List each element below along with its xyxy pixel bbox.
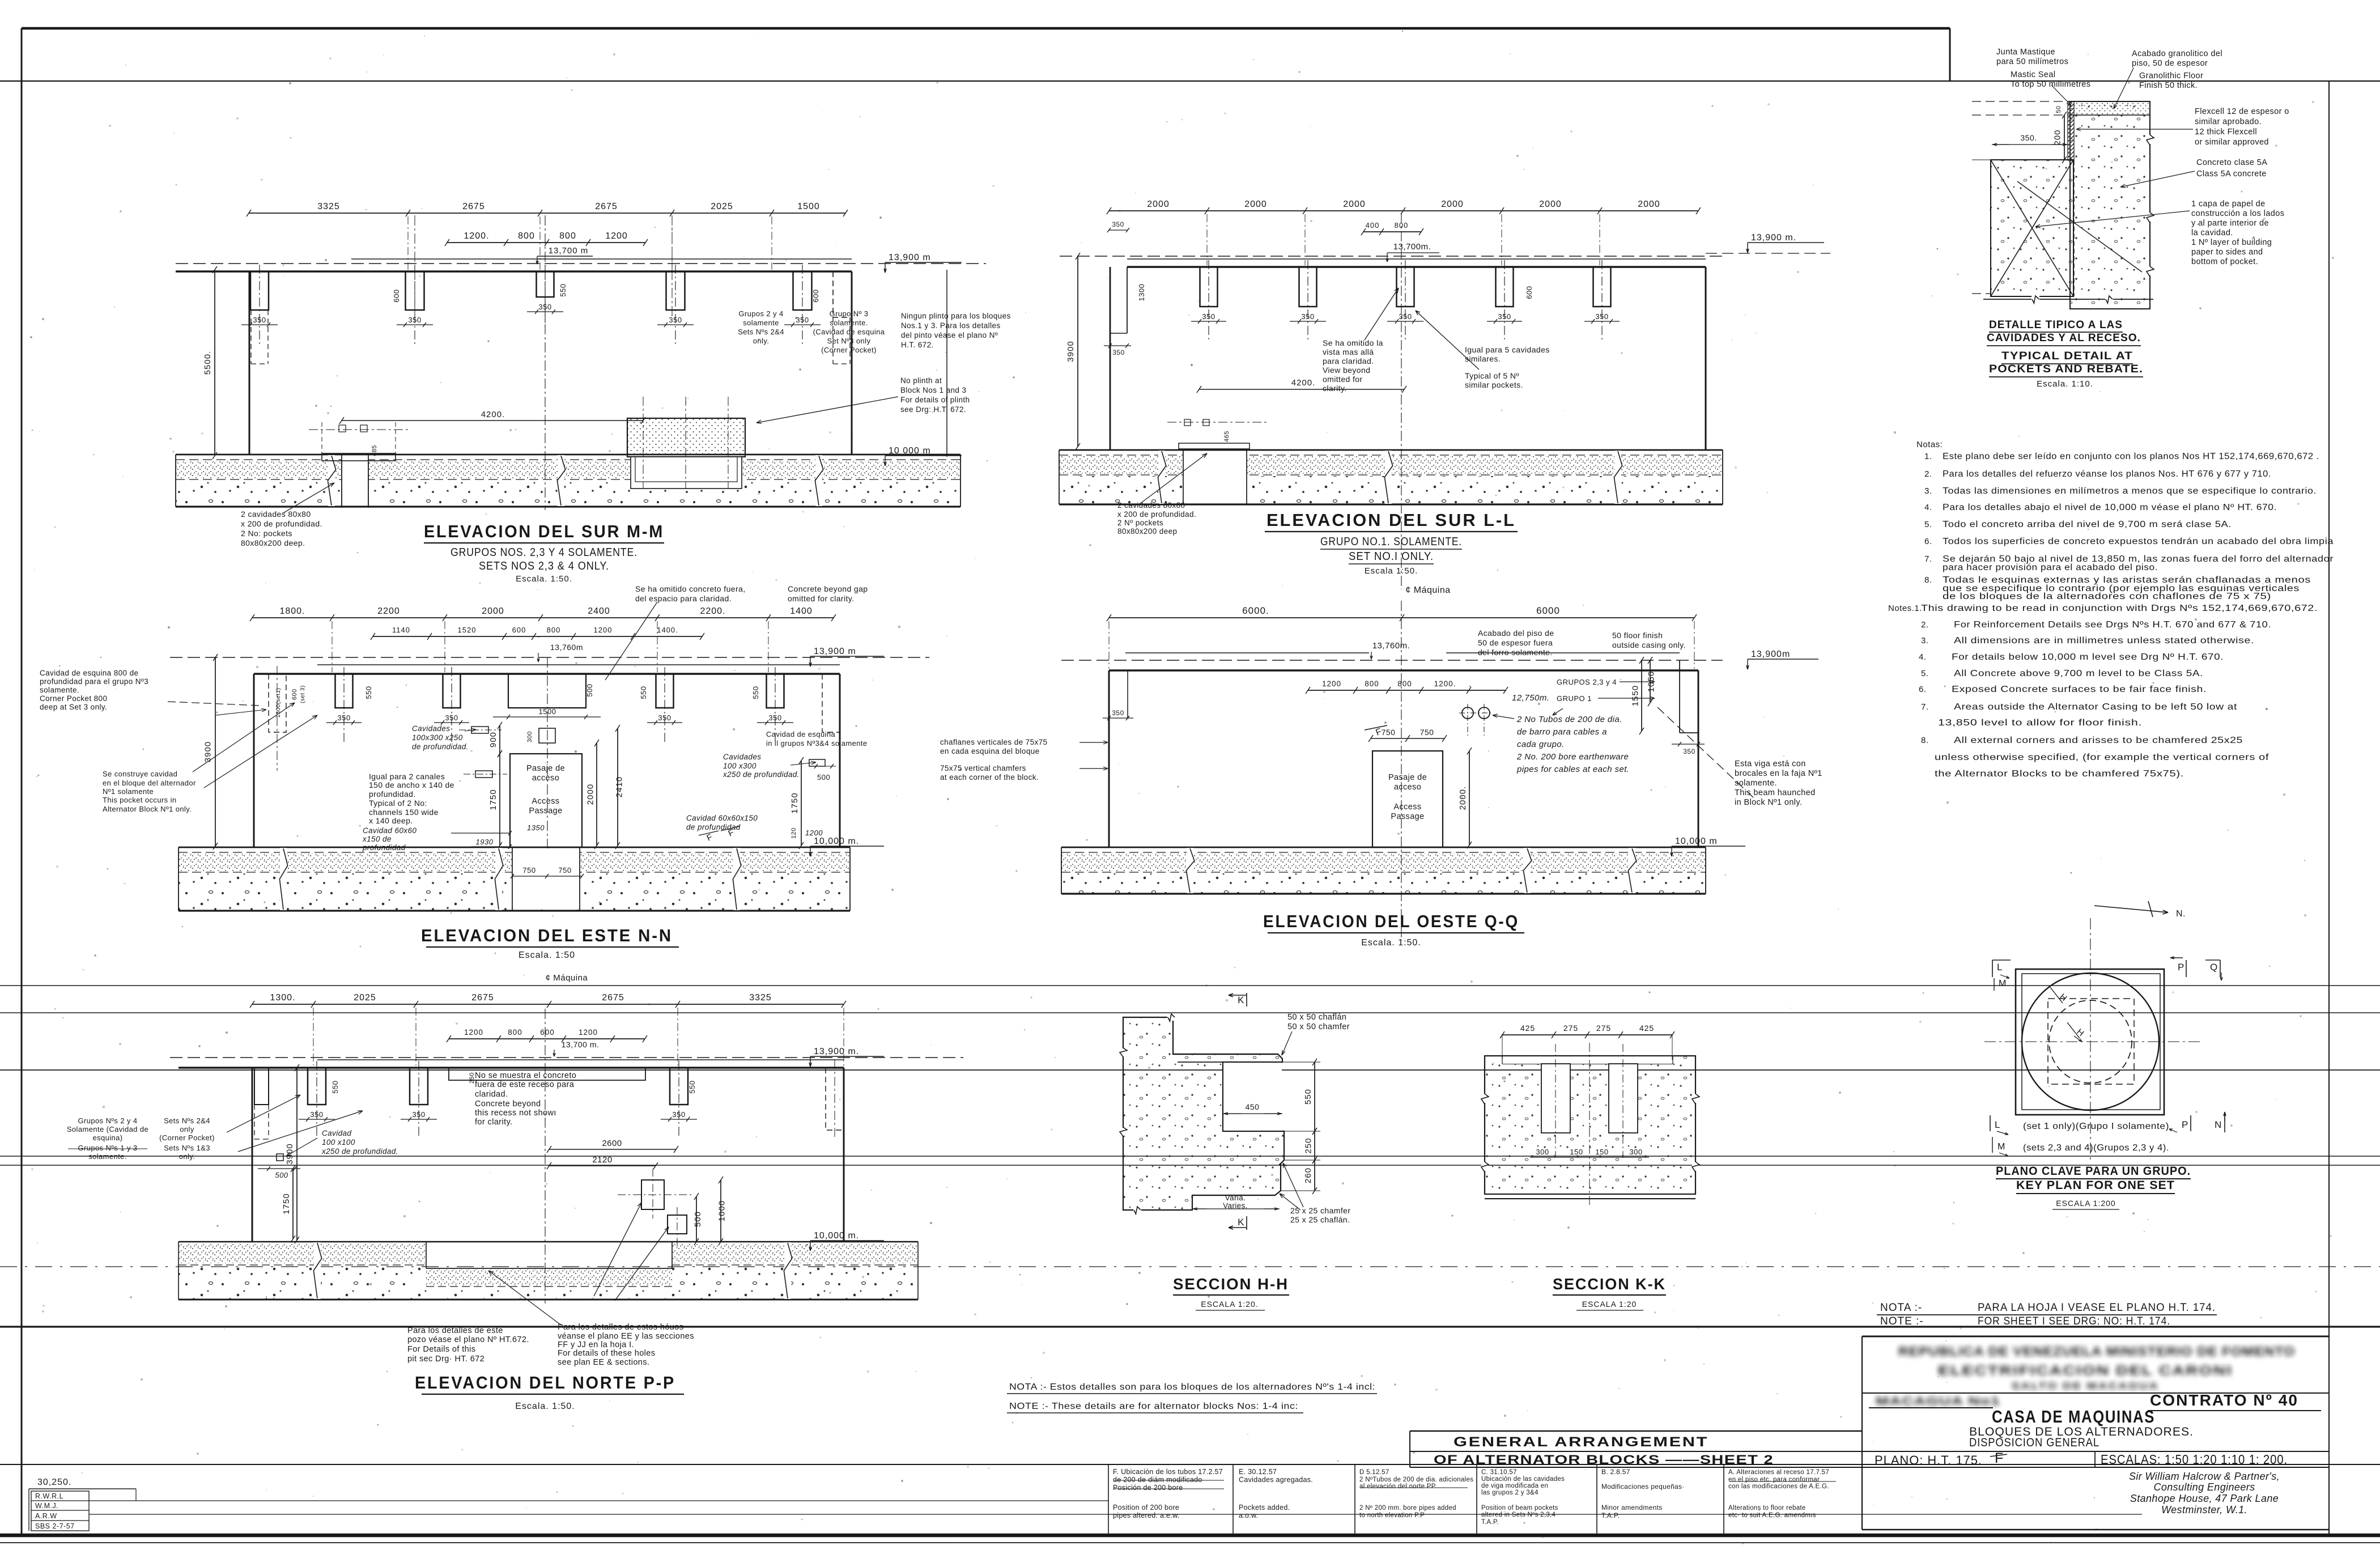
svg-text:del espacio para claridad.: del espacio para claridad. [635,594,732,603]
svg-text:ELECTRIFICACION DEL: ELECTRIFICACION DEL CARONI [1938,1363,2233,1378]
svg-text:Grupos Nºs 1 y 3: Grupos Nºs 1 y 3 [78,1144,137,1152]
svg-text:5.: 5. [1924,520,1932,529]
svg-text:Pasaje de: Pasaje de [1388,773,1427,782]
svg-text:SALTO DE MACAGUA: SALTO DE MACAGUA [2012,1381,2159,1391]
svg-text:1750: 1750 [790,792,800,813]
svg-text:350: 350 [412,1110,425,1119]
svg-text:Este plano debe ser leído en c: Este plano debe ser leído en conjunto co… [1943,452,2319,461]
svg-text:1300(set1): 1300(set1) [275,688,282,718]
svg-text:2 No: pockets: 2 No: pockets [241,529,292,538]
svg-text:solamente.: solamente. [1735,779,1777,788]
svg-text:PLANO: H.T. 175.: PLANO: H.T. 175. [1875,1453,1982,1467]
svg-text:550: 550 [559,283,567,296]
svg-text:R.W.R.L: R.W.R.L [35,1492,63,1500]
svg-text:No se muestra el concreto: No se muestra el concreto [475,1071,576,1080]
svg-text:chaflanes verticales de 75x75: chaflanes verticales de 75x75 [940,738,1047,746]
svg-text:For details of plinth: For details of plinth [900,396,970,404]
svg-text:Esta viga está con: Esta viga está con [1735,759,1806,768]
svg-text:260: 260 [1303,1167,1313,1183]
svg-text:solamente.: solamente. [830,319,868,327]
svg-text:Typical of 5 Nº: Typical of 5 Nº [1465,371,1519,380]
svg-text:750: 750 [522,866,535,874]
svg-text:Exposed Concrete surfaces to b: Exposed Concrete surfaces to be fair fac… [1952,685,2207,694]
svg-text:de profundidad.: de profundidad. [412,742,469,751]
svg-text:Flexcell 12 de espesor o: Flexcell 12 de espesor o [2195,107,2289,116]
svg-text:Position of 200 bore: Position of 200 bore [1113,1504,1179,1511]
svg-text:All Concrete above 9,700 m l: All Concrete above 9,700 m level to be C… [1954,669,2203,678]
svg-text:13,700 m.: 13,700 m. [562,1040,600,1049]
svg-text:13,900 m: 13,900 m [889,253,931,262]
svg-text:Todo el concreto arriba del ni: Todo el concreto arriba del nivel de 9,7… [1943,520,2232,529]
svg-text:600: 600 [512,626,526,634]
svg-text:¢ Máquina: ¢ Máquina [546,973,588,983]
svg-text:1500: 1500 [797,202,820,211]
svg-text:en el bloque del alternador: en el bloque del alternador [103,779,196,787]
svg-text:FOR SHEET I SEE DRG: NO: H.T.: FOR SHEET I SEE DRG: NO: H.T. 174. [1978,1315,2170,1327]
svg-text:3.: 3. [1924,486,1932,496]
svg-text:This drawing to be read in con: This drawing to be read in conjunction w… [1921,604,2318,613]
svg-text:8.: 8. [1924,575,1932,585]
svg-text:Todas las dimensiones en milím: Todas las dimensiones en milímetros a me… [1943,486,2317,496]
svg-text:Escala. 1:50: Escala. 1:50 [518,950,575,960]
svg-text:esquina): esquina) [92,1133,122,1142]
svg-text:12 thick Flexcell: 12 thick Flexcell [2195,128,2257,137]
svg-text:150 de ancho x 140 de: 150 de ancho x 140 de [369,780,454,789]
svg-text:N: N [2215,1119,2222,1130]
svg-text:this recess not showı: this recess not showı [475,1109,556,1118]
svg-text:Modificaciones pequeñas·: Modificaciones pequeñas· [1601,1483,1685,1491]
svg-text:las grupos 2 y 3&4: las grupos 2 y 3&4 [1481,1489,1538,1496]
svg-text:brocales en la faja Nº1: brocales en la faja Nº1 [1735,769,1822,778]
svg-text:Passage: Passage [529,806,562,816]
svg-text:For details of these holes: For details of these holes [558,1349,655,1358]
svg-text:acceso: acceso [1394,783,1421,792]
svg-text:Consulting Engineers: Consulting Engineers [2153,1481,2255,1493]
svg-text:600: 600 [291,689,298,700]
svg-text:pozo véase el plano Nº HT.672.: pozo véase el plano Nº HT.672. [407,1335,529,1344]
svg-text:100x300 x250: 100x300 x250 [412,733,463,742]
svg-text:Passage: Passage [1391,812,1424,821]
svg-text:1750: 1750 [488,789,498,810]
svg-text:500: 500 [693,1211,703,1227]
svg-text:10,000 m.: 10,000 m. [814,1231,859,1241]
svg-text:TYPICAL DETAIL AT: TYPICAL DETAIL AT [2001,350,2133,362]
svg-text:L: L [1997,962,2003,973]
svg-text:outside casing only.: outside casing only. [1612,640,1686,649]
svg-text:1 Nº layer of building: 1 Nº layer of building [2191,238,2272,247]
svg-text:SECCION K-K: SECCION K-K [1553,1275,1666,1293]
svg-text:Se ha omitido concreto fuera,: Se ha omitido concreto fuera, [635,584,745,593]
svg-text:Sir William Halcrow & Partn: Sir William Halcrow & Partner's, [2129,1471,2280,1482]
svg-text:500: 500 [585,683,594,697]
svg-text:P: P [2178,962,2184,973]
svg-text:para hacer provisión para el a: para hacer provisión para el acabado del… [1943,563,2158,572]
svg-text:Concreto clase 5A: Concreto clase 5A [2196,158,2267,167]
svg-text:NOTE :- These details are for: NOTE :- These details are for alternator… [1009,1402,1298,1411]
svg-text:¢ Máquina: ¢ Máquina [1405,585,1450,595]
svg-text:Typical of 2 No:: Typical of 2 No: [369,799,427,808]
svg-text:Acabado del piso de: Acabado del piso de [1478,629,1554,638]
svg-text:Cavidad de esquina: Cavidad de esquina [766,730,835,738]
svg-text:Escala. 1:10.: Escala. 1:10. [2037,379,2093,389]
svg-text:350: 350 [1399,312,1412,321]
svg-text:350: 350 [1112,349,1125,356]
svg-text:Posición de 200 bore: Posición de 200 bore [1113,1484,1183,1492]
svg-text:SECCION H-H: SECCION H-H [1173,1275,1289,1293]
svg-text:ESCALA 1:20.: ESCALA 1:20. [1201,1300,1259,1309]
svg-text:2000: 2000 [482,606,504,616]
svg-text:Granolithic Floor: Granolithic Floor [2139,71,2203,80]
svg-text:50 floor finish: 50 floor finish [1612,631,1663,640]
svg-text:y al parte interior de: y al parte interior de [2191,219,2269,228]
svg-text:1 capa de papel de: 1 capa de papel de [2191,199,2266,209]
svg-text:al elevación del norte PP: al elevación del norte PP [1359,1483,1436,1490]
svg-text:1200: 1200 [464,1028,483,1037]
svg-text:Set Nº3 only: Set Nº3 only [827,337,871,345]
svg-text:D: D 5.12.57 [1359,1469,1389,1476]
svg-text:10,000 m.: 10,000 m. [814,837,859,846]
svg-text:2025: 2025 [711,202,733,211]
svg-text:13,700m.: 13,700m. [1393,242,1431,252]
svg-text:2675: 2675 [595,202,618,211]
svg-text:etc· to suit A.E.G. amendmıs: etc· to suit A.E.G. amendmıs [1728,1512,1816,1519]
svg-text:Grupos Nºs 2 y 4: Grupos Nºs 2 y 4 [78,1116,137,1125]
svg-text:Class 5A concrete: Class 5A concrete [2196,169,2267,179]
svg-text:x 140 deep.: x 140 deep. [369,816,413,825]
svg-text:(set 3): (set 3) [300,685,306,703]
svg-text:750: 750 [1420,728,1434,737]
svg-text:1400: 1400 [790,606,813,616]
svg-text:2 cavidades 80x80: 2 cavidades 80x80 [1117,501,1185,509]
svg-text:piso, 50 de espesor: piso, 50 de espesor [2132,59,2208,68]
svg-text:profundidad para el grupo Nº3: profundidad para el grupo Nº3 [40,677,148,686]
svg-text:Cavidad 60x60x150: Cavidad 60x60x150 [686,814,758,822]
svg-text:vista mas allá: vista mas allá [1323,347,1374,356]
svg-text:Stanhope House, 47 Park Lane: Stanhope House, 47 Park Lane [2130,1493,2279,1504]
svg-text:7.: 7. [1924,554,1932,564]
svg-text:2 No Tubos de 200 de dia.: 2 No Tubos de 200 de dia. [1516,715,1622,724]
svg-text:2.: 2. [1924,469,1932,479]
svg-text:Q: Q [2210,962,2218,973]
svg-text:600: 600 [392,289,401,302]
svg-text:altered in Sets Nºs 2,3,4: altered in Sets Nºs 2,3,4 [1481,1511,1556,1518]
svg-text:ESCALA 1:200: ESCALA 1:200 [2056,1199,2115,1208]
svg-text:150: 150 [1570,1148,1583,1156]
svg-text:at each corner of the block.: at each corner of the block. [940,773,1039,782]
svg-text:7.: 7. [1921,702,1929,712]
svg-text:only.: only. [753,337,770,345]
svg-text:Cavidad de esquina 800 de: Cavidad de esquina 800 de [40,669,138,677]
svg-text:T.A.P.: T.A.P. [1601,1511,1620,1519]
svg-text:similar pockets.: similar pockets. [1465,380,1523,389]
svg-text:de 200 de diám modificado: de 200 de diám modificado [1113,1476,1202,1484]
svg-text:profundidad.: profundidad. [369,789,416,799]
svg-text:A. Alteraciones al receso 17.7: A. Alteraciones al receso 17.7.57 [1728,1469,1829,1476]
svg-text:800: 800 [547,626,561,634]
svg-text:1750: 1750 [282,1193,291,1214]
svg-text:4200.: 4200. [1291,378,1316,388]
svg-text:(Corner Pocket): (Corner Pocket) [821,346,877,354]
svg-text:30,250.: 30,250. [37,1477,71,1487]
svg-text:2600: 2600 [602,1139,622,1148]
svg-text:unless otherwise specified, (f: unless otherwise specified, (for example… [1935,753,2269,762]
svg-text:or similar approved: or similar approved [2195,138,2269,147]
svg-text:Finish 50 thick.: Finish 50 thick. [2139,81,2198,90]
svg-text:350: 350 [1301,312,1314,321]
svg-text:solamente.: solamente. [88,1152,127,1161]
svg-text:in il grupos Nº3&4 solamente: in il grupos Nº3&4 solamente [766,739,868,748]
svg-text:6.: 6. [1924,537,1932,546]
svg-text:2000: 2000 [1539,199,1562,209]
svg-text:300: 300 [526,731,533,742]
svg-text:en cada esquina del bloque: en cada esquina del bloque [940,747,1040,755]
svg-text:del forro solamente.: del forro solamente. [1478,648,1553,657]
svg-text:Grupos 2 y 4: Grupos 2 y 4 [738,309,783,318]
svg-text:465: 465 [1223,431,1230,442]
svg-text:F. Ubicación de los tubos 17: F. Ubicación de los tubos 17.2.57 [1113,1468,1223,1476]
svg-text:1930: 1930 [476,838,494,846]
svg-text:50: 50 [2055,105,2062,113]
svg-text:1200.: 1200. [464,231,489,241]
svg-text:350: 350 [1112,709,1124,717]
svg-text:claridad.: claridad. [475,1090,508,1099]
svg-text:2410: 2410 [615,776,624,797]
svg-text:2000: 2000 [1343,199,1366,209]
svg-text:500: 500 [817,773,830,782]
svg-text:Escala. 1:50.: Escala. 1:50. [1361,938,1421,948]
svg-text:GRUPO NO.1. SOLAMENTE.: GRUPO NO.1. SOLAMENTE. [1320,536,1462,548]
svg-text:Escala. 1:50.: Escala. 1:50. [516,574,572,584]
svg-text:x150 de: x150 de [362,835,392,843]
svg-text:GRUPOS 2,3 y 4: GRUPOS 2,3 y 4 [1557,678,1617,686]
svg-text:350: 350 [796,316,809,324]
svg-text:SETS NOS 2,3 & 4 ONLY.: SETS NOS 2,3 & 4 ONLY. [479,560,609,572]
svg-text:Block Nos 1 and 3: Block Nos 1 and 3 [900,386,966,394]
svg-text:275: 275 [1596,1024,1611,1033]
svg-text:350: 350 [408,316,421,324]
svg-text:750: 750 [558,866,571,874]
svg-text:350: 350 [672,1110,685,1119]
svg-text:K: K [1238,995,1244,1005]
svg-text:Ningun plinto para los bloques: Ningun plinto para los bloques [901,312,1011,320]
svg-text:Position of beam pockets: Position of beam pockets [1481,1505,1558,1511]
svg-text:This pocket occurs in: This pocket occurs in [103,796,177,804]
svg-text:For details below 10,000 m l: For details below 10,000 m level see Drg… [1952,652,2224,662]
svg-text:3325: 3325 [749,993,772,1003]
svg-text:clarity.: clarity. [1323,384,1347,393]
svg-text:x250 de profundidad.: x250 de profundidad. [321,1147,398,1156]
svg-text:Alterations to floor rebate: Alterations to floor rebate [1728,1505,1806,1511]
svg-text:550: 550 [639,686,648,699]
svg-text:cada grupo.: cada grupo. [1517,740,1565,749]
svg-text:2675: 2675 [462,202,485,211]
svg-text:pipes for cables at each set.: pipes for cables at each set. [1516,765,1629,774]
svg-text:DETALLE TIPICO A LAS: DETALLE TIPICO A LAS [1989,319,2123,331]
svg-text:Concrete beyond gap: Concrete beyond gap [788,584,868,593]
svg-text:200: 200 [2053,129,2063,145]
svg-text:ESCALAS: 1:50 1:20 1:10 1:: ESCALAS: 1:50 1:20 1:10 1: 200. [2101,1452,2288,1467]
svg-text:13,760m.: 13,760m. [1372,641,1410,651]
svg-text:Cavidad 60x60: Cavidad 60x60 [363,826,416,835]
svg-text:150: 150 [1595,1148,1608,1156]
svg-text:Areas outside the Alternator C: Areas outside the Alternator Casing to b… [1954,702,2237,712]
svg-text:80x80x200 deep: 80x80x200 deep [1117,527,1177,536]
svg-text:300: 300 [1536,1148,1549,1156]
svg-text:1300.: 1300. [270,993,295,1003]
svg-text:NOTA :- Estos detalles son pa: NOTA :- Estos detalles son para los bloq… [1009,1382,1375,1392]
svg-text:For Reinforcement Details see: For Reinforcement Details see Drgs Nºs H… [1954,620,2271,630]
svg-text:W.M.J.: W.M.J. [35,1502,58,1510]
svg-text:(sets 2,3 and 4)(Grupos 2,3 y: (sets 2,3 and 4)(Grupos 2,3 y 4). [2023,1143,2169,1153]
svg-text:2200: 2200 [377,606,400,616]
svg-text:(set 1 only)(Grupo I solamente: (set 1 only)(Grupo I solamente) [2023,1122,2169,1131]
svg-text:800: 800 [1365,680,1379,688]
svg-text:solamente: solamente [743,319,779,327]
svg-text:Para los detalles abajo el ni: Para los detalles abajo el nivel de 10,0… [1943,503,2277,512]
svg-text:550: 550 [688,1080,696,1093]
svg-text:Cavidad: Cavidad [322,1129,351,1137]
svg-text:50 x 50 chaflán: 50 x 50 chaflán [1287,1013,1346,1022]
svg-text:600: 600 [1525,286,1533,299]
svg-text:Nos.1 y 3. Para los detalles: Nos.1 y 3. Para los detalles [901,321,1001,330]
svg-text:for clarity.: for clarity. [475,1118,513,1127]
svg-text:P: P [2182,1119,2188,1130]
svg-text:to north elevation P.P: to north elevation P.P [1359,1512,1425,1519]
svg-text:800: 800 [559,231,576,241]
svg-text:OF ALTERNATOR BLOCKS ——SHE: OF ALTERNATOR BLOCKS ——SHEET 2 [1434,1453,1774,1467]
svg-text:13,760m: 13,760m [550,643,583,652]
svg-text:2120: 2120 [592,1155,612,1165]
svg-text:1800.: 1800. [279,606,305,616]
svg-text:NOTA :-: NOTA :- [1880,1302,1922,1314]
svg-text:ELEVACION DEL NORTE P-P: ELEVACION DEL NORTE P-P [415,1373,675,1392]
svg-text:750: 750 [1382,728,1396,737]
svg-text:1200: 1200 [1322,680,1341,688]
svg-text:8.: 8. [1921,736,1929,745]
svg-text:25 x 25 chamfer: 25 x 25 chamfer [1290,1206,1350,1215]
svg-text:4.: 4. [1919,652,1927,662]
svg-text:del pinto véase el plano Nº: del pinto véase el plano Nº [901,331,998,339]
svg-text:1500: 1500 [539,707,556,716]
svg-text:550: 550 [331,1080,339,1093]
svg-text:900: 900 [488,732,498,748]
svg-text:MACAGUA No1: MACAGUA No1 [1876,1395,2000,1408]
svg-text:350: 350 [1683,748,1695,755]
svg-text:CAVIDADES Y AL RECESO.: CAVIDADES Y AL RECESO. [1987,332,2141,344]
svg-text:Concrete beyond: Concrete beyond [475,1099,541,1109]
svg-text:3.: 3. [1921,636,1929,646]
svg-text:350: 350 [669,316,682,324]
svg-text:300: 300 [1629,1148,1642,1156]
svg-text:Para los detalles de estos hóu: Para los detalles de estos hóuos [558,1323,683,1332]
svg-text:50 de espesor fuera: 50 de espesor fuera [1478,638,1553,647]
svg-text:F: F [1995,1450,2004,1466]
svg-text:350: 350 [445,714,458,722]
svg-text:View beyond: View beyond [1323,366,1370,375]
svg-text:Pasaje de: Pasaje de [526,764,565,773]
svg-text:ELEVACION DEL ESTE N-N: ELEVACION DEL ESTE N-N [421,925,673,945]
svg-text:1000: 1000 [717,1200,727,1221]
svg-text:Nº1 solamente: Nº1 solamente [103,787,154,796]
svg-text:1350: 1350 [527,823,545,832]
svg-text:350.: 350. [2020,133,2037,142]
svg-text:1300: 1300 [1137,284,1146,302]
svg-text:250: 250 [1304,1137,1314,1153]
svg-text:Notas:: Notas: [1916,440,1943,449]
svg-text:Escala 1:50.: Escala 1:50. [1365,566,1418,576]
svg-text:2 Nº 200 mm. bore pipes added: 2 Nº 200 mm. bore pipes added [1359,1505,1456,1511]
svg-text:REPUBLICA DE VENEZUELA: REPUBLICA DE VENEZUELA MINISTERIO DE FOM… [1898,1344,2295,1358]
svg-text:2000: 2000 [586,784,596,805]
svg-text:omitted for: omitted for [1323,375,1363,384]
svg-text:Sets Nºs 2&4: Sets Nºs 2&4 [738,328,784,336]
svg-text:con las modificaciones de A.E.: con las modificaciones de A.E.G. [1728,1483,1829,1490]
svg-text:only.: only. [179,1152,195,1161]
svg-text:Se construye cavidad: Se construye cavidad [103,770,177,778]
svg-text:POCKETS AND REBATE.: POCKETS AND REBATE. [1989,363,2143,375]
svg-text:pit sec Drg· HT. 672: pit sec Drg· HT. 672 [407,1355,484,1364]
svg-text:1200: 1200 [805,829,823,837]
svg-text:pipes altered. a.e: pipes altered. a.e.w. [1113,1511,1179,1519]
svg-text:5.: 5. [1921,669,1929,678]
svg-text:485: 485 [371,445,378,456]
svg-text:1400.: 1400. [657,626,678,634]
svg-text:Escala. 1:50.: Escala. 1:50. [515,1402,575,1411]
svg-text:3325: 3325 [317,202,340,211]
svg-text:275: 275 [1563,1024,1578,1033]
svg-text:A.R.W: A.R.W [35,1512,57,1520]
svg-text:Grupo Nº 3: Grupo Nº 3 [830,309,869,318]
svg-text:3900: 3900 [1066,341,1076,362]
svg-text:2000: 2000 [1244,199,1267,209]
svg-text:13,700 m: 13,700 m [549,246,589,256]
svg-text:800: 800 [518,231,535,241]
svg-text:500: 500 [275,1171,288,1179]
svg-text:x 200 de profundidad.: x 200 de profundidad. [1117,510,1196,519]
svg-text:13,900m: 13,900m [1751,649,1790,659]
svg-text:la cavidad.: la cavidad. [2191,228,2233,237]
svg-text:4200.: 4200. [481,410,505,419]
svg-text:12,750m.: 12,750m. [1512,693,1550,703]
svg-text:KEY PLAN FOR ONE SET: KEY PLAN FOR ONE SET [2016,1179,2175,1192]
svg-text:Alternator Block Nº1 only.: Alternator Block Nº1 only. [103,805,192,813]
svg-text:All dimensions are in millimet: All dimensions are in millimetres unless… [1954,636,2254,646]
svg-text:FF y JJ en la hoja I.: FF y JJ en la hoja I. [558,1340,634,1349]
svg-text:Para los detalles de este: Para los detalles de este [407,1326,503,1335]
svg-text:550: 550 [1303,1089,1313,1105]
svg-text:2 NºTubos de 200 de dia. adici: 2 NºTubos de 200 de dia. adicionales [1359,1476,1473,1483]
svg-text:Solamente (Cavidad de: Solamente (Cavidad de [67,1125,148,1133]
svg-text:Sets Nºs 1&3: Sets Nºs 1&3 [164,1144,210,1152]
svg-text:Varia.: Varia. [1225,1194,1246,1202]
svg-text:For Details of this: For Details of this [407,1345,475,1354]
svg-text:550: 550 [751,686,760,699]
svg-text:100 x100: 100 x100 [322,1138,355,1147]
svg-text:H.T. 672.: H.T. 672. [901,341,934,349]
svg-text:800: 800 [508,1028,522,1037]
svg-text:ELEVACION DEL SUR M-M: ELEVACION DEL SUR M-M [424,521,664,541]
svg-text:1200: 1200 [605,231,628,241]
svg-text:construcción a los lados: construcción a los lados [2191,209,2284,218]
svg-text:2 cavidades 80x80: 2 cavidades 80x80 [241,509,311,519]
svg-text:1200: 1200 [594,626,613,634]
svg-text:Cavidades: Cavidades [723,753,761,761]
svg-text:350: 350 [658,714,671,722]
svg-text:M: M [1999,979,2007,988]
svg-text:PLANO CLAVE PARA UN GRUPO.: PLANO CLAVE PARA UN GRUPO. [1996,1165,2191,1178]
svg-text:Igual para 2 canales: Igual para 2 canales [369,772,445,781]
svg-text:5500.: 5500. [203,351,212,375]
